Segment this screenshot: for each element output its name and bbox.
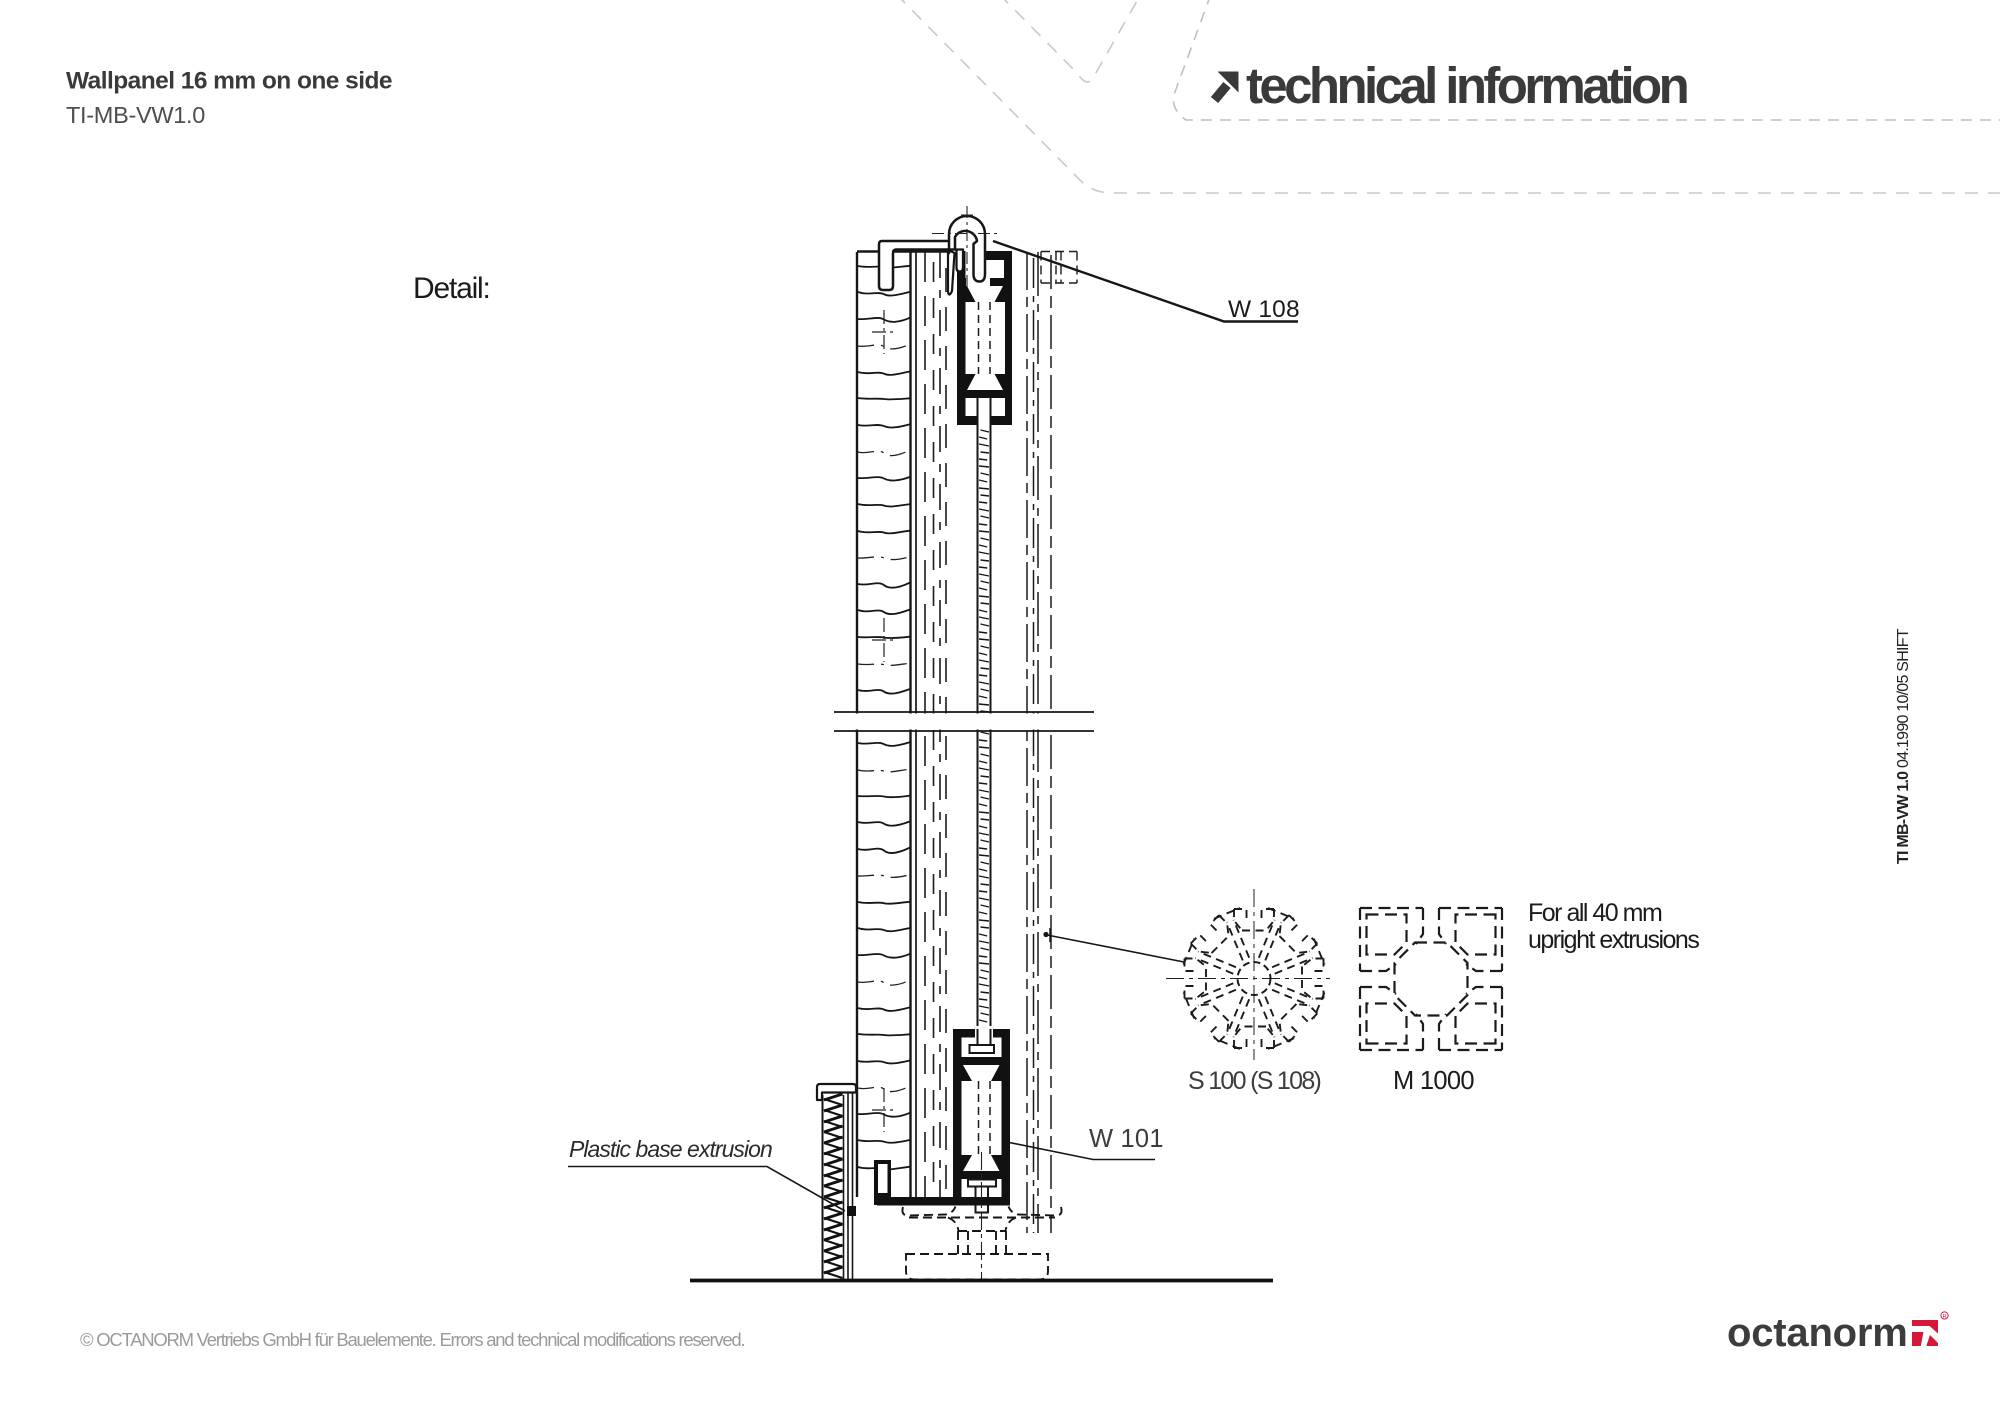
svg-text:technical information: technical information bbox=[1246, 57, 1687, 114]
svg-text:Detail:: Detail: bbox=[413, 272, 490, 305]
svg-text:W 108: W 108 bbox=[1228, 296, 1300, 323]
svg-text:For all 40 mm: For all 40 mm bbox=[1528, 899, 1662, 927]
svg-text:S 100 (S 108): S 100 (S 108) bbox=[1188, 1067, 1321, 1095]
svg-text:W 101: W 101 bbox=[1089, 1125, 1164, 1153]
svg-text:octanorm: octanorm bbox=[1727, 1311, 1908, 1355]
svg-text:upright extrusions: upright extrusions bbox=[1528, 926, 1699, 954]
svg-text:M 1000: M 1000 bbox=[1393, 1067, 1474, 1095]
svg-text:TI MB-VW 1.0 04.1990 10/05 SHI: TI MB-VW 1.0 04.1990 10/05 SHIFT bbox=[1895, 628, 1912, 864]
svg-text:Wallpanel 16 mm on one side: Wallpanel 16 mm on one side bbox=[66, 68, 392, 95]
svg-text:© OCTANORM Vertriebs GmbH für: © OCTANORM Vertriebs GmbH für Bauelement… bbox=[80, 1329, 744, 1350]
svg-text:R: R bbox=[1943, 1314, 1947, 1320]
svg-text:Plastic base extrusion: Plastic base extrusion bbox=[569, 1136, 772, 1162]
svg-text:TI-MB-VW1.0: TI-MB-VW1.0 bbox=[66, 102, 205, 128]
